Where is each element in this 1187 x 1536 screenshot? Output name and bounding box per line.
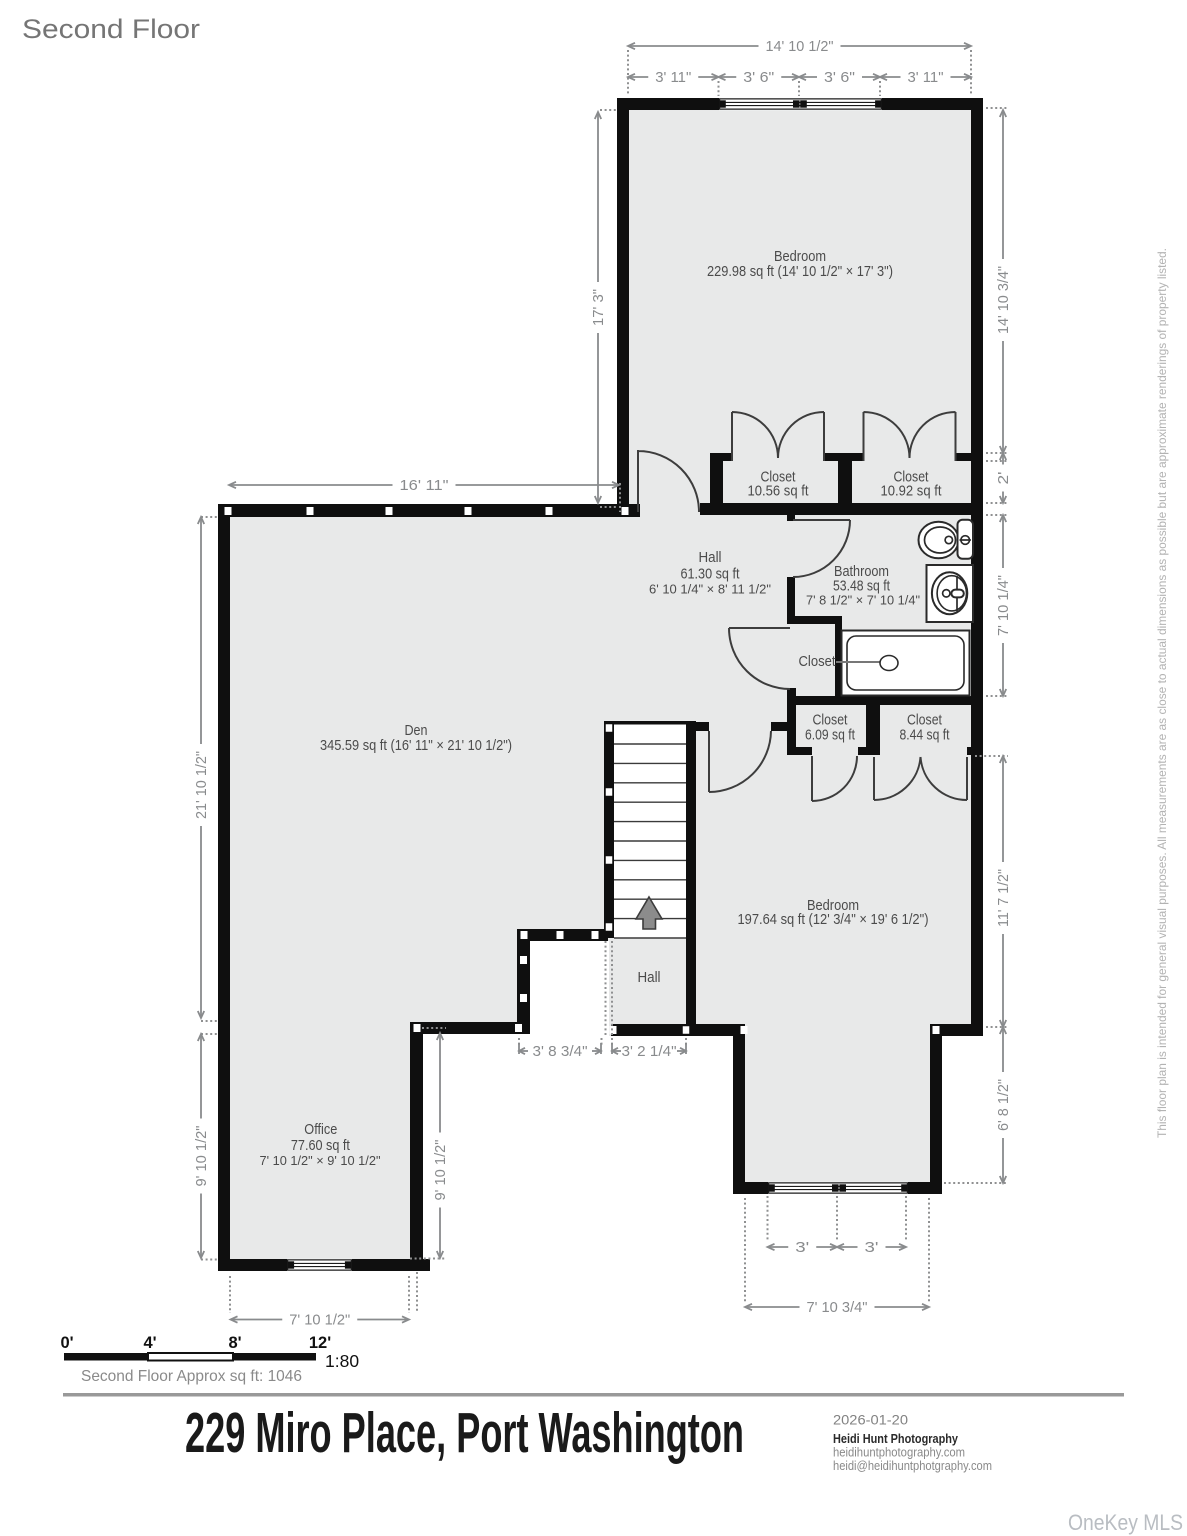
svg-text:0': 0'	[60, 1334, 73, 1352]
svg-text:11' 7 1/2": 11' 7 1/2"	[995, 869, 1012, 927]
svg-text:1:80: 1:80	[325, 1351, 359, 1371]
svg-text:77.60 sq ft: 77.60 sq ft	[291, 1137, 351, 1154]
svg-text:21' 10 1/2": 21' 10 1/2"	[193, 751, 210, 819]
svg-text:229.98 sq ft (14' 10 1/2" × 17: 229.98 sq ft (14' 10 1/2" × 17' 3")	[707, 263, 893, 280]
svg-text:This floor plan is intended fo: This floor plan is intended for general …	[1155, 248, 1169, 1138]
svg-text:16' 11": 16' 11"	[400, 477, 449, 494]
svg-text:Second Floor: Second Floor	[22, 14, 200, 44]
svg-text:7' 10 3/4": 7' 10 3/4"	[807, 1299, 868, 1316]
svg-text:2026-01-20: 2026-01-20	[833, 1413, 908, 1428]
svg-text:8.44 sq ft: 8.44 sq ft	[900, 727, 951, 744]
svg-text:3' 11": 3' 11"	[908, 69, 944, 86]
svg-text:Closet: Closet	[799, 653, 837, 670]
svg-text:3' 11": 3' 11"	[655, 69, 691, 86]
svg-text:3' 6": 3' 6"	[743, 69, 774, 86]
svg-text:Office: Office	[304, 1121, 337, 1138]
svg-text:345.59 sq ft (16' 11" × 21' 10: 345.59 sq ft (16' 11" × 21' 10 1/2")	[320, 737, 512, 754]
svg-text:7' 8 1/2" × 7' 10 1/4": 7' 8 1/2" × 7' 10 1/4"	[806, 594, 920, 608]
svg-text:8': 8'	[228, 1334, 241, 1352]
svg-text:4': 4'	[143, 1334, 156, 1352]
svg-text:14' 10 1/2": 14' 10 1/2"	[766, 38, 834, 55]
svg-text:9' 10 1/2": 9' 10 1/2"	[432, 1140, 449, 1201]
svg-text:3' 6": 3' 6"	[824, 69, 855, 86]
svg-text:53.48 sq ft: 53.48 sq ft	[833, 578, 891, 595]
svg-text:heidihuntphotography.com: heidihuntphotography.com	[833, 1446, 965, 1460]
svg-text:3' 8 3/4": 3' 8 3/4"	[533, 1043, 588, 1060]
svg-text:7' 10 1/2" × 9' 10 1/2": 7' 10 1/2" × 9' 10 1/2"	[260, 1154, 381, 1168]
svg-text:6.09 sq ft: 6.09 sq ft	[805, 727, 856, 744]
svg-text:6' 8 1/2": 6' 8 1/2"	[995, 1079, 1012, 1131]
svg-text:229 Miro Place, Port Washingto: 229 Miro Place, Port Washington	[185, 1401, 744, 1465]
svg-text:Heidi Hunt Photography: Heidi Hunt Photography	[833, 1431, 959, 1446]
svg-text:17' 3": 17' 3"	[590, 289, 607, 326]
svg-text:Second Floor Approx sq ft: 104: Second Floor Approx sq ft: 1046	[81, 1368, 302, 1385]
svg-text:Hall: Hall	[638, 969, 661, 986]
svg-text:3' 2 1/4": 3' 2 1/4"	[622, 1043, 677, 1060]
svg-text:6' 10 1/4" × 8' 11 1/2": 6' 10 1/4" × 8' 11 1/2"	[649, 583, 771, 597]
svg-text:OneKey MLS: OneKey MLS	[1068, 1510, 1183, 1535]
svg-text:9' 10 1/2": 9' 10 1/2"	[193, 1126, 210, 1187]
svg-text:197.64 sq ft (12' 3/4" × 19' 6: 197.64 sq ft (12' 3/4" × 19' 6 1/2")	[738, 911, 929, 928]
svg-text:61.30 sq ft: 61.30 sq ft	[681, 566, 741, 583]
svg-text:heidi@heidihuntphotgraphy.com: heidi@heidihuntphotgraphy.com	[833, 1459, 992, 1473]
svg-text:2': 2'	[995, 471, 1012, 484]
svg-text:3': 3'	[865, 1239, 879, 1256]
svg-text:Hall: Hall	[699, 549, 722, 566]
svg-text:7' 10 1/2": 7' 10 1/2"	[289, 1312, 350, 1329]
svg-text:14' 10 3/4": 14' 10 3/4"	[995, 266, 1012, 334]
svg-text:10.92 sq ft: 10.92 sq ft	[881, 483, 943, 500]
svg-text:3': 3'	[795, 1239, 809, 1256]
svg-text:12': 12'	[309, 1334, 331, 1352]
svg-text:10.56 sq ft: 10.56 sq ft	[748, 483, 810, 500]
svg-text:7' 10 1/4": 7' 10 1/4"	[995, 575, 1012, 636]
